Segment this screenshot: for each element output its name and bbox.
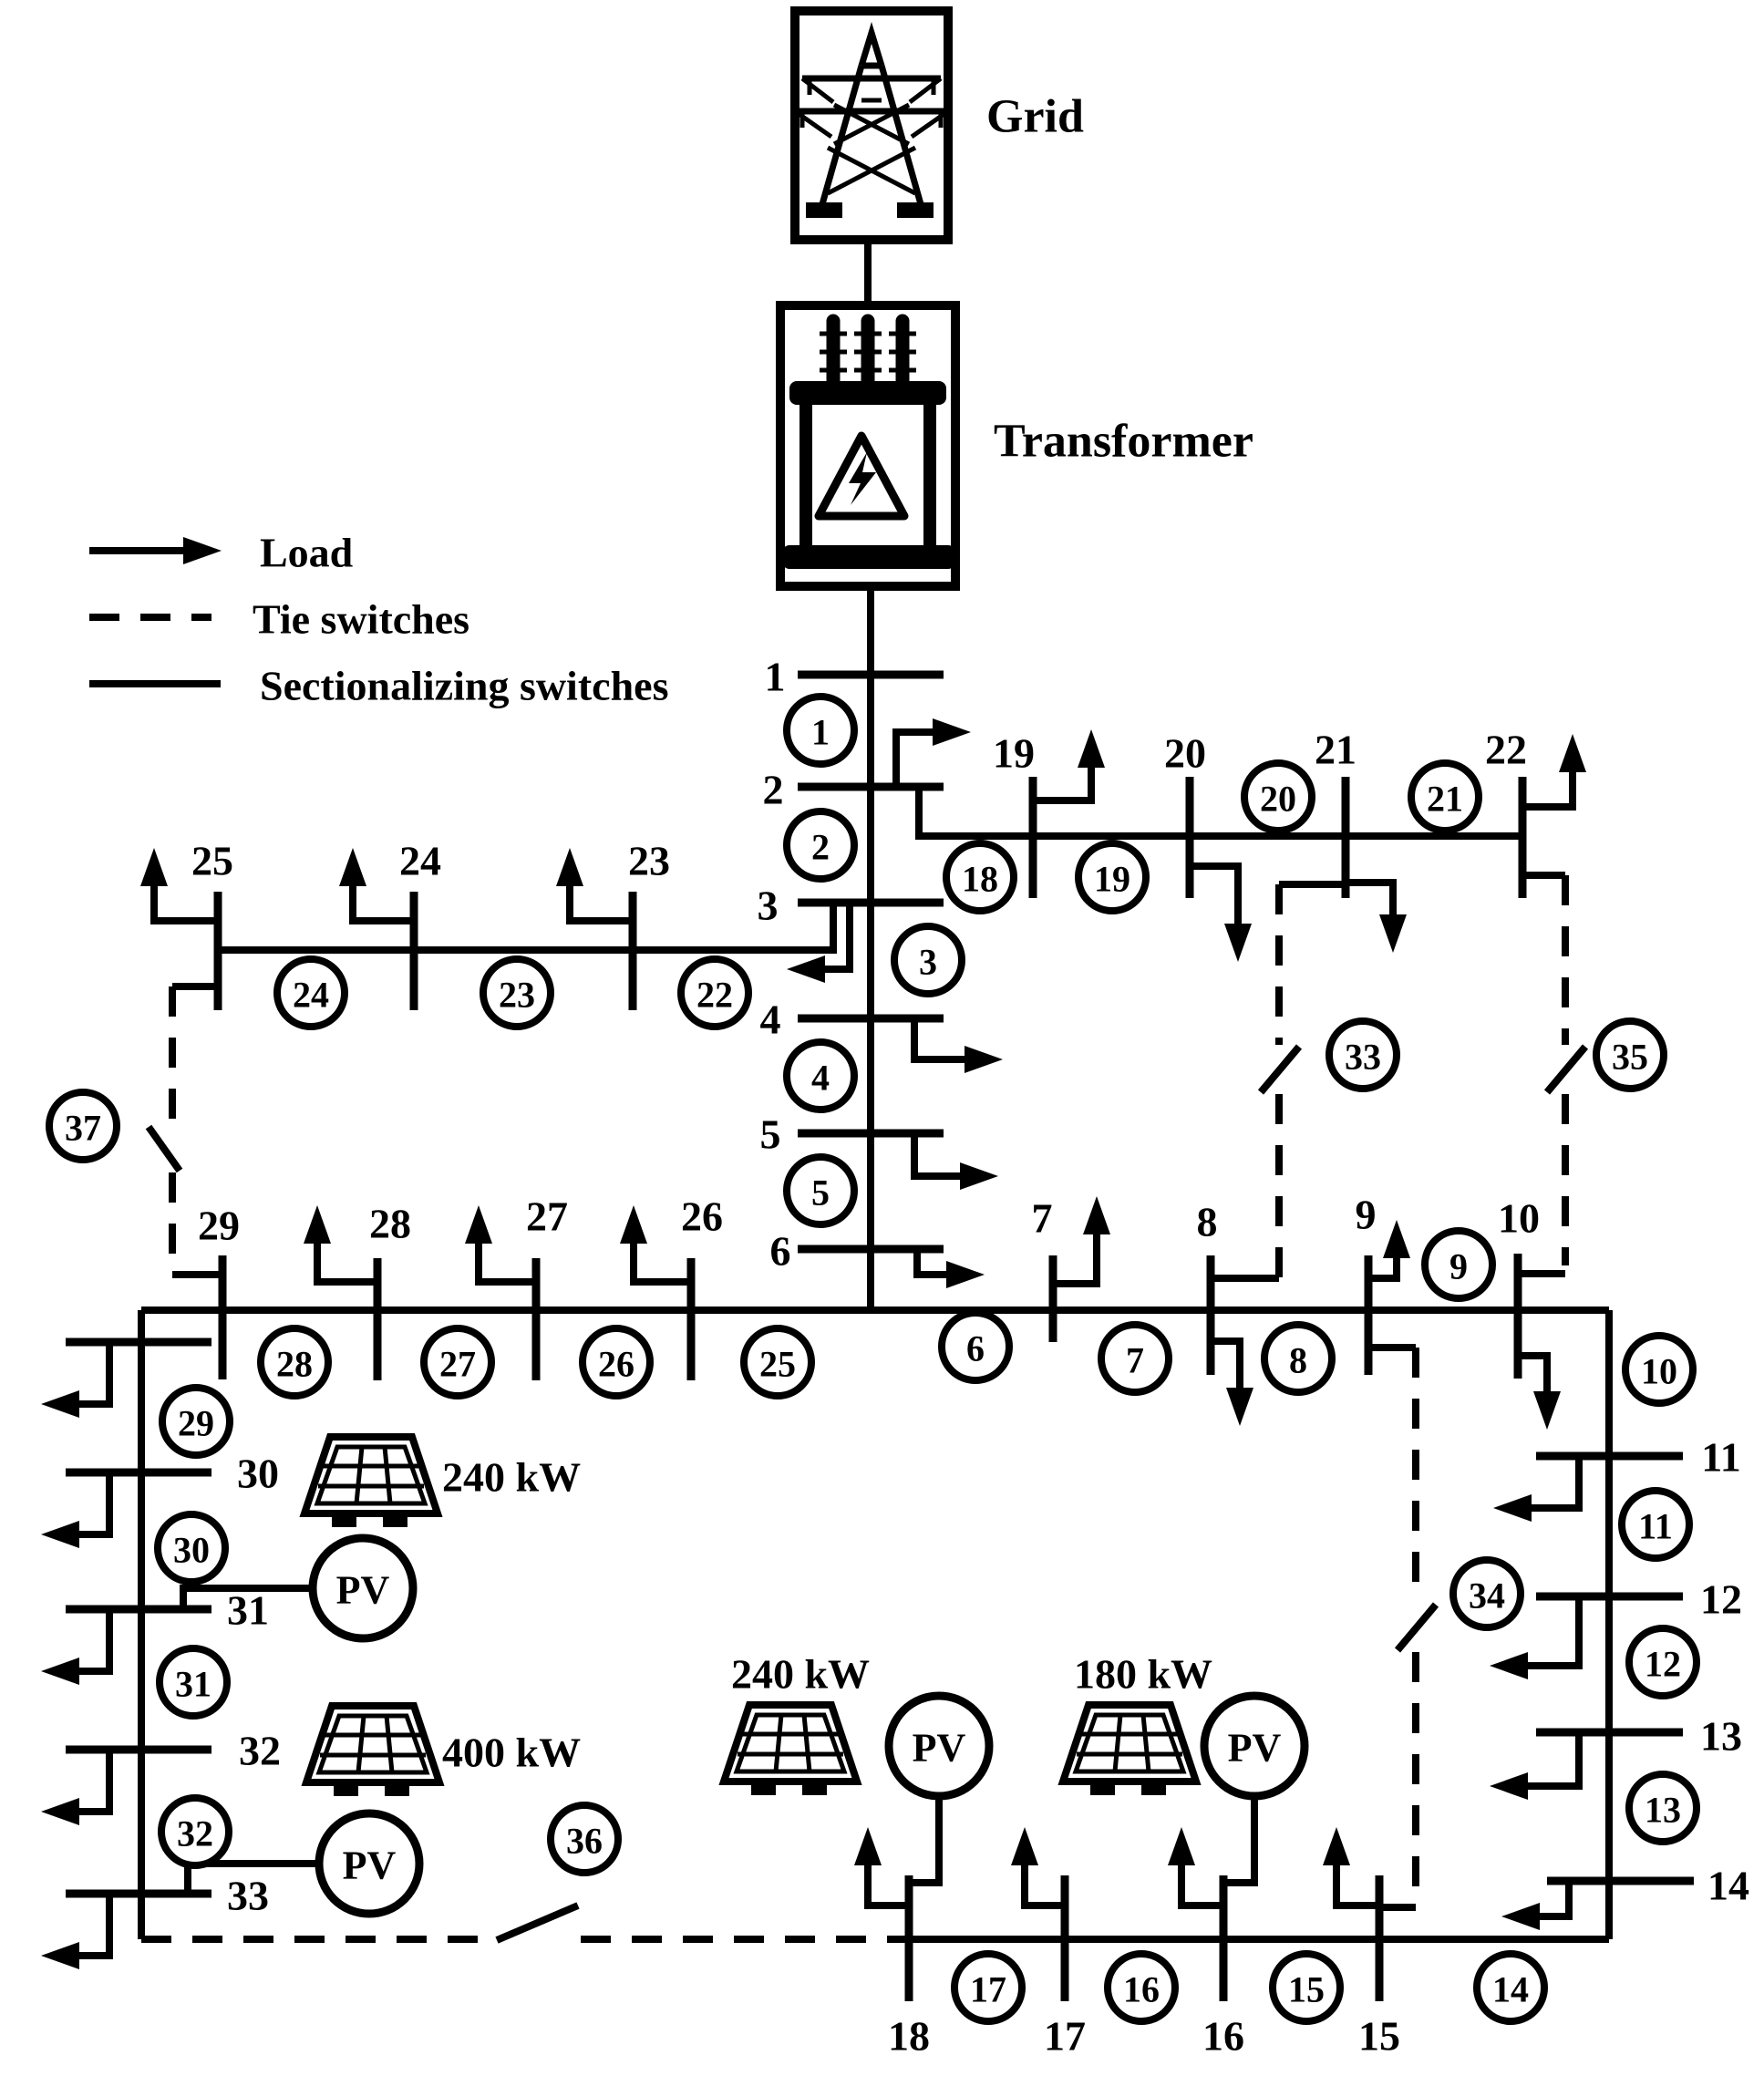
grid-label: Grid	[986, 91, 1084, 143]
svg-text:9: 9	[1449, 1246, 1468, 1287]
load-arrow-bus-22	[1559, 734, 1586, 772]
load-arrow-bus-13	[1490, 1772, 1528, 1800]
svg-text:27: 27	[439, 1344, 476, 1385]
pv-unit-bus33: PV 400 kW	[306, 1706, 581, 1914]
pv-unit-bus18: PV 240 kW	[724, 1651, 989, 1797]
load-arrow-bus-20	[1224, 924, 1252, 962]
bus-label-32: 32	[239, 1728, 281, 1774]
branch-circle-34: 34	[1453, 1560, 1521, 1627]
svg-text:5: 5	[811, 1172, 830, 1214]
pv-rating-bus31: 240 kW	[442, 1454, 581, 1501]
svg-text:11: 11	[1638, 1506, 1673, 1547]
legend-load-label: Load	[260, 530, 354, 576]
branch-circle-14: 14	[1477, 1954, 1544, 2021]
svg-text:14: 14	[1492, 1969, 1529, 2010]
svg-text:1: 1	[811, 712, 830, 753]
bus-label-19: 19	[993, 730, 1035, 777]
branch-circle-24: 24	[277, 959, 345, 1027]
load-arrow-bus-27	[465, 1205, 492, 1244]
svg-text:29: 29	[178, 1403, 214, 1444]
branch-23-25-feeder	[218, 903, 833, 950]
svg-text:3: 3	[919, 942, 937, 983]
switch-blade-37	[149, 1127, 180, 1171]
load-arrow-bus-18	[854, 1827, 882, 1865]
branch-circle-7: 7	[1101, 1325, 1169, 1392]
branch-circle-28: 28	[261, 1328, 328, 1396]
svg-text:34: 34	[1469, 1575, 1505, 1616]
svg-text:21: 21	[1427, 779, 1463, 820]
legend-sectionalizing-label: Sectionalizing switches	[260, 663, 668, 709]
pv-unit-bus31: PV 240 kW	[304, 1437, 581, 1638]
svg-text:22: 22	[696, 975, 733, 1016]
bus-label-18: 18	[888, 2013, 930, 2060]
load-arrow-bus-21	[1379, 914, 1407, 953]
svg-text:10: 10	[1641, 1351, 1677, 1392]
svg-text:4: 4	[811, 1058, 830, 1099]
svg-text:23: 23	[499, 975, 535, 1016]
branch-circle-25: 25	[744, 1328, 811, 1396]
branch-circle-1: 1	[787, 697, 854, 764]
bus-label-9: 9	[1356, 1192, 1377, 1238]
bus-label-26: 26	[681, 1193, 723, 1240]
svg-text:26: 26	[598, 1344, 634, 1385]
load-arrow-bus-5	[960, 1162, 998, 1190]
pv-rating-bus33: 400 kW	[442, 1730, 581, 1776]
pv-label: PV	[336, 1568, 390, 1613]
branch-circle-36: 36	[551, 1805, 618, 1873]
bus-label-28: 28	[369, 1201, 411, 1247]
load-arrow-bus-14	[1501, 1903, 1540, 1930]
branch-circle-27: 27	[424, 1328, 491, 1396]
load-arrow-bus-15	[1323, 1827, 1350, 1865]
load-arrow-bus-16	[1168, 1827, 1195, 1865]
branch-circle-4: 4	[787, 1042, 854, 1110]
bus-label-16: 16	[1202, 2013, 1244, 2060]
bus-label-12: 12	[1700, 1576, 1742, 1623]
load-arrow-bus-6	[946, 1261, 985, 1288]
svg-text:15: 15	[1288, 1969, 1325, 2010]
bus-label-11: 11	[1701, 1434, 1740, 1481]
bus-label-13: 13	[1700, 1713, 1742, 1760]
switch-blade-33	[1261, 1047, 1299, 1092]
switch-blade-34	[1398, 1605, 1436, 1650]
legend: Load Tie switches Sectionalizing switche…	[89, 530, 668, 709]
load-arrow-bus-2	[933, 718, 971, 746]
branch-circle-26: 26	[583, 1328, 650, 1396]
pv-label: PV	[343, 1844, 397, 1888]
branch-circle-11: 11	[1622, 1491, 1689, 1558]
svg-text:6: 6	[966, 1328, 985, 1369]
bus-label-4: 4	[760, 997, 781, 1043]
load-arrow-bus-19	[1078, 729, 1105, 768]
bus-label-8: 8	[1197, 1199, 1218, 1245]
svg-text:35: 35	[1612, 1037, 1648, 1078]
bus-label-7: 7	[1032, 1195, 1053, 1242]
pv-rating-bus18: 240 kW	[731, 1651, 870, 1698]
bus-label-10: 10	[1498, 1195, 1540, 1242]
branch-circle-19: 19	[1078, 843, 1146, 911]
branch-circle-20: 20	[1244, 763, 1312, 831]
bus-label-22: 22	[1485, 727, 1527, 773]
solar-panel-icon	[724, 1705, 857, 1795]
branch-circle-6: 6	[942, 1313, 1009, 1380]
svg-text:25: 25	[759, 1344, 796, 1385]
branch-circle-8: 8	[1264, 1325, 1332, 1392]
bus-label-5: 5	[760, 1111, 781, 1158]
load-arrow-bus-8	[1226, 1388, 1253, 1426]
network-diagram: Grid Transformer Load Tie switches Secti…	[0, 0, 1764, 2076]
load-arrow-bus-26	[620, 1205, 647, 1244]
grid-node	[795, 11, 948, 240]
bus-label-6: 6	[770, 1228, 791, 1275]
branch-circle-9: 9	[1425, 1231, 1492, 1298]
svg-text:2: 2	[811, 827, 830, 868]
svg-text:28: 28	[276, 1344, 313, 1385]
branch-circle-17: 17	[954, 1954, 1022, 2021]
transformer-label: Transformer	[994, 416, 1253, 468]
branch-circle-22: 22	[681, 959, 748, 1027]
load-arrow-bus-3	[787, 955, 825, 983]
svg-text:7: 7	[1126, 1340, 1144, 1381]
load-arrow-bus-28	[304, 1205, 331, 1244]
bus-label-2: 2	[763, 767, 784, 813]
bus-label-1: 1	[765, 654, 786, 700]
solar-panel-icon	[1063, 1705, 1196, 1795]
branch-circle-12: 12	[1629, 1628, 1697, 1696]
load-arrow-bus-9	[1383, 1220, 1410, 1258]
svg-text:16: 16	[1123, 1969, 1160, 2010]
load-arrow-bus-29	[41, 1390, 79, 1418]
svg-text:19: 19	[1094, 859, 1130, 900]
bus-label-29: 29	[198, 1203, 240, 1249]
svg-text:24: 24	[293, 975, 329, 1016]
branch-circle-37: 37	[49, 1092, 117, 1160]
load-arrow-bus-24	[339, 848, 366, 886]
bus-label-17: 17	[1044, 2013, 1086, 2060]
svg-text:8: 8	[1289, 1340, 1307, 1381]
branch-circle-30: 30	[158, 1514, 225, 1582]
branch-circle-15: 15	[1273, 1954, 1340, 2021]
bus-label-20: 20	[1164, 730, 1206, 777]
branch-circle-3: 3	[894, 926, 962, 994]
svg-text:17: 17	[970, 1969, 1006, 2010]
branch-circle-10: 10	[1625, 1336, 1693, 1403]
load-arrow-bus-10	[1533, 1391, 1561, 1430]
bus-label-15: 15	[1358, 2013, 1400, 2060]
svg-text:30: 30	[173, 1530, 210, 1571]
load-arrow-bus-23	[556, 848, 583, 886]
svg-text:36: 36	[566, 1821, 603, 1862]
load-arrow-bus-33	[41, 1942, 79, 1969]
switch-blade-36	[497, 1906, 578, 1940]
svg-text:32: 32	[177, 1813, 213, 1854]
bus-label-25: 25	[191, 838, 233, 884]
pv-label: PV	[1228, 1726, 1282, 1771]
legend-load-arrowhead	[183, 537, 222, 564]
branch-circle-13: 13	[1629, 1774, 1697, 1842]
branch-circle-21: 21	[1411, 763, 1479, 831]
svg-text:12: 12	[1645, 1644, 1681, 1685]
load-arrow-bus-11	[1493, 1494, 1532, 1522]
solar-panel-icon	[304, 1437, 438, 1527]
bus-label-27: 27	[526, 1193, 568, 1240]
load-arrow-bus-25	[140, 848, 168, 886]
branch-circle-23: 23	[483, 959, 551, 1027]
pv-label: PV	[913, 1726, 966, 1771]
load-arrow-bus-17	[1011, 1827, 1038, 1865]
bus-label-24: 24	[399, 838, 441, 884]
bus-label-31: 31	[227, 1587, 269, 1634]
solar-panel-icon	[306, 1706, 439, 1796]
svg-text:13: 13	[1645, 1790, 1681, 1831]
branch-circle-29: 29	[162, 1388, 230, 1455]
branch-circle-16: 16	[1108, 1954, 1175, 2021]
load-arrow-bus-31	[41, 1658, 79, 1685]
single-line-diagram-page: Grid Transformer Load Tie switches Secti…	[0, 0, 1764, 2076]
load-arrow-bus-30	[41, 1521, 79, 1548]
bus-label-3: 3	[758, 883, 779, 929]
bus-label-30: 30	[237, 1451, 279, 1497]
pv-unit-bus16: PV 180 kW	[1063, 1651, 1305, 1797]
svg-text:20: 20	[1260, 779, 1296, 820]
load-arrow-bus-7	[1083, 1196, 1110, 1234]
bus-label-33: 33	[227, 1873, 269, 1919]
load-arrow-bus-32	[41, 1798, 79, 1825]
svg-text:33: 33	[1345, 1037, 1381, 1078]
branch-circle-2: 2	[787, 811, 854, 879]
transformer-node	[780, 305, 955, 586]
branch-circle-33: 33	[1329, 1021, 1397, 1089]
switch-blade-35	[1547, 1047, 1585, 1092]
legend-tie-label: Tie switches	[253, 596, 469, 643]
bus-label-21: 21	[1315, 727, 1357, 773]
load-arrow-bus-4	[965, 1046, 1003, 1073]
bus-label-23: 23	[628, 838, 670, 884]
branch-circle-35: 35	[1596, 1021, 1664, 1089]
branch-circle-18: 18	[946, 843, 1014, 911]
svg-text:31: 31	[175, 1664, 211, 1705]
pv-rating-bus16: 180 kW	[1074, 1651, 1212, 1698]
branch-circle-31: 31	[160, 1648, 227, 1716]
bus-label-14: 14	[1707, 1863, 1749, 1909]
load-arrow-bus-12	[1490, 1652, 1528, 1679]
svg-text:18: 18	[962, 859, 998, 900]
branch-circle-32: 32	[161, 1798, 229, 1865]
branch-circle-5: 5	[787, 1157, 854, 1224]
svg-text:37: 37	[65, 1108, 101, 1149]
